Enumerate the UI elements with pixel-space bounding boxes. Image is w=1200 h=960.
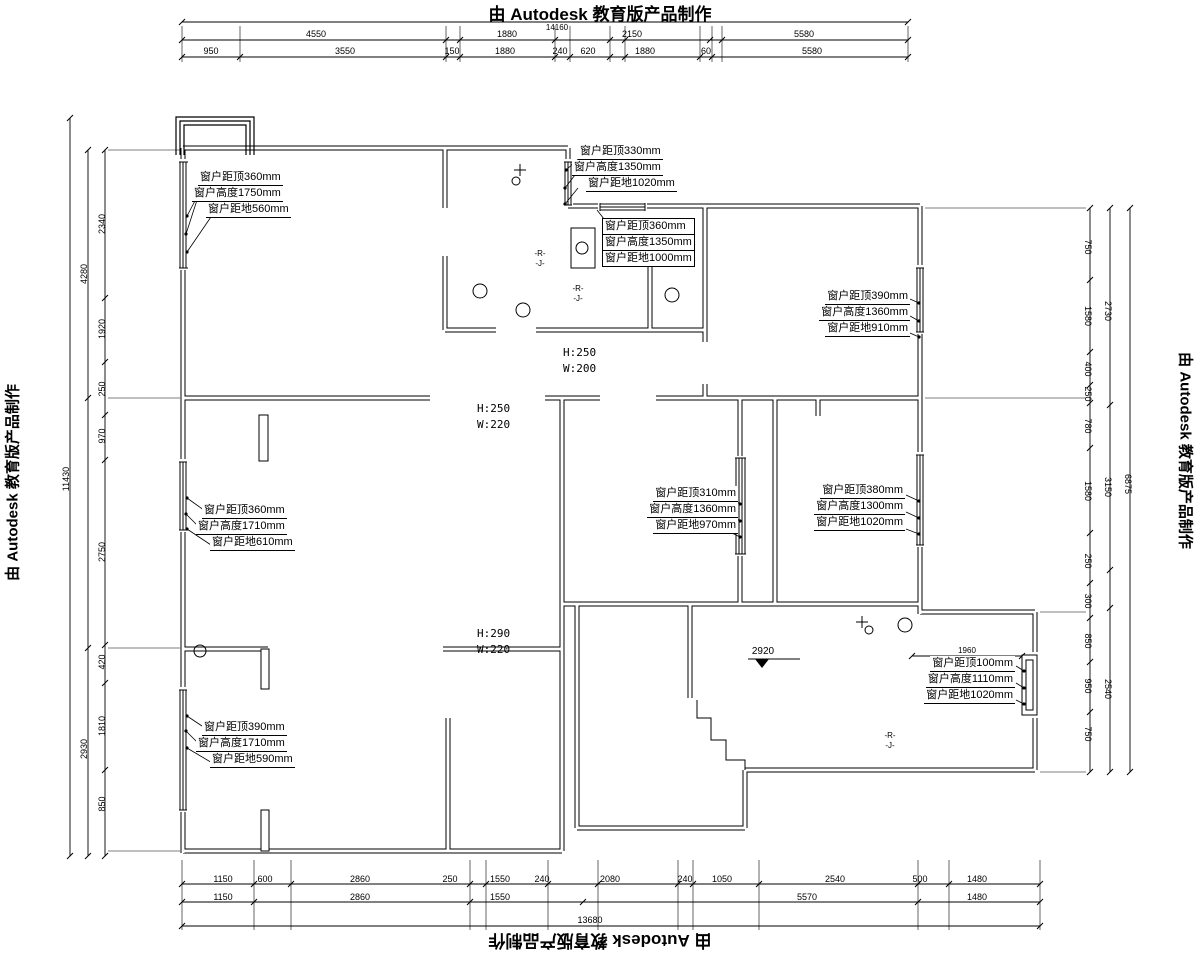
dim-value: 750 [1083,225,1093,269]
beam-width: W:220 [477,643,510,656]
window-top-distance: 窗户距顶360mm [198,170,283,186]
window-label-9: 窗户距顶100mm 窗户高度1110mm 窗户距地1020mm [918,656,1015,704]
bay-window-symbol [1022,655,1037,715]
stair-steps [697,700,745,770]
window-top-distance: 窗户距顶390mm [202,720,287,736]
dim-value: 1580 [1083,294,1093,338]
window-label-5: 窗户距顶360mm 窗户高度1710mm 窗户距地610mm [196,503,295,551]
watermark-left: 由 Autodesk 教育版产品制作 [2,333,23,633]
beam-height: H:250 [563,346,596,359]
drain-code: -J- [535,259,544,268]
drain-code: -R- [572,284,583,293]
dim-value: 300 [1083,579,1093,623]
drain-mark-3: -R--J- [878,731,902,751]
dim-value: 2730 [1103,289,1113,333]
dim-value: 5580 [782,29,826,39]
window-label-8: 窗户距顶390mm 窗户高度1710mm 窗户距地590mm [196,720,295,768]
drain-code: -R- [534,249,545,258]
beam-note-1: H:250W:200 [563,345,596,377]
beam-note-2: H:250W:220 [477,401,510,433]
dim-value: 4280 [79,252,89,296]
dim-value: 1480 [955,874,999,884]
dim-value: 850 [97,782,107,826]
window-top-distance: 窗户距顶360mm [202,503,287,519]
window-sill-height: 窗户距地1020mm [924,688,1015,704]
dim-value: 1580 [1083,469,1093,513]
dim-value: 250 [97,367,107,411]
dim-value: 1550 [478,892,522,902]
window-sill-height: 窗户距地1020mm [814,515,905,531]
dim-value: 750 [1083,712,1093,756]
dim-value: 240 [520,874,564,884]
closet-boxes [259,228,595,851]
dim-value: 4550 [294,29,338,39]
window-label-2: 窗户距顶330mm 窗户高度1350mm 窗户距地1020mm [572,144,677,192]
window-height: 窗户高度1360mm [819,305,910,321]
beam-height: H:250 [477,402,510,415]
beam-width: W:200 [563,362,596,375]
dim-value: 150 [430,46,474,56]
dim-value: 250 [1083,539,1093,583]
dim-value: 950 [189,46,233,56]
dim-left-total: 11430 [61,457,71,501]
dim-value: 1150 [201,874,245,884]
dim-value: 2930 [79,727,89,771]
beam-width: W:220 [477,418,510,431]
window-top-distance: 窗户距顶380mm [820,483,905,499]
dim-value: 970 [97,414,107,458]
dim-value: 250 [428,874,472,884]
window-height: 窗户高度1710mm [196,736,287,752]
window-sill-height: 窗户距地1020mm [586,176,677,192]
dim-value: 1880 [483,46,527,56]
beam-note-3: H:290W:220 [477,626,510,658]
window-top-distance: 窗户距顶360mm [603,219,694,235]
dim-value: 850 [1083,619,1093,663]
window-sill-height: 窗户距地1000mm [603,251,694,266]
dim-value: 1480 [955,892,999,902]
window-sill-height: 窗户距地590mm [210,752,295,768]
dim-value: 2860 [338,874,382,884]
dim-top-total: 14160 [535,23,579,32]
drain-mark-1: -R--J- [528,249,552,269]
window-label-7: 窗户距顶380mm 窗户高度1300mm 窗户距地1020mm [808,483,905,531]
window-height: 窗户高度1710mm [196,519,287,535]
dim-value: 1050 [700,874,744,884]
window-top-distance: 窗户距顶390mm [825,289,910,305]
dim-value: 60 [684,46,728,56]
window-label-6: 窗户距顶310mm 窗户高度1360mm 窗户距地970mm [643,486,738,534]
window-sill-height: 窗户距地970mm [653,518,738,534]
window-sill-height: 窗户距地610mm [210,535,295,551]
dim-value: 1880 [623,46,667,56]
window-label-4: 窗户距顶390mm 窗户高度1360mm 窗户距地910mm [815,289,910,337]
cad-floorplan-canvas: 由 Autodesk 教育版产品制作 由 Autodesk 教育版产品制作 由 … [0,0,1200,960]
window-top-distance: 窗户距顶330mm [578,144,663,160]
drain-code: -R- [884,731,895,740]
dim-right-total: 6875 [1123,462,1133,506]
drain-code: -J- [573,294,582,303]
watermark-right: 由 Autodesk 教育版产品制作 [1176,301,1197,601]
dim-value: 1150 [201,892,245,902]
drain-mark-2: -R--J- [566,284,590,304]
dim-value: 2080 [588,874,632,884]
watermark-top: 由 Autodesk 教育版产品制作 [0,0,1200,25]
window-top-distance: 窗户距顶310mm [653,486,738,502]
dim-value: 1920 [97,307,107,351]
dim-value: 2750 [97,530,107,574]
window-label-1: 窗户距顶360mm 窗户高度1750mm 窗户距地560mm [192,170,291,218]
dim-value: 2540 [813,874,857,884]
dim-value: 2860 [338,892,382,902]
beam-height: H:290 [477,627,510,640]
dim-value: 600 [243,874,287,884]
dim-value: 3150 [1103,465,1113,509]
dim-value: 1810 [97,704,107,748]
window-height: 窗户高度1750mm [192,186,283,202]
dim-value: 620 [566,46,610,56]
dim-value: 1880 [485,29,529,39]
dim-value: 500 [898,874,942,884]
window-top-distance: 窗户距顶100mm [930,656,1015,672]
window-sill-height: 窗户距地910mm [825,321,910,337]
window-height: 窗户高度1350mm [603,235,694,251]
dim-value: 2340 [97,202,107,246]
window-height: 窗户高度1360mm [647,502,738,518]
window-sill-height: 窗户距地560mm [206,202,291,218]
dim-bottom-total: 13680 [568,915,612,925]
dim-value: 5580 [790,46,834,56]
elevation-value: 2920 [741,646,785,657]
dim-value: 2150 [610,29,654,39]
window-label-3: 窗户距顶360mm 窗户高度1350mm 窗户距地1000mm [602,218,695,267]
dim-value: 3550 [323,46,367,56]
elevation-marker [748,659,800,668]
dim-value: 5570 [785,892,829,902]
window-height: 窗户高度1110mm [926,672,1015,688]
window-height: 窗户高度1300mm [814,499,905,515]
watermark-bottom: 由 Autodesk 教育版产品制作 [0,930,1200,955]
dim-value: 950 [1083,664,1093,708]
plumbing-fixtures [194,242,912,657]
dim-value: 780 [1083,404,1093,448]
window-height: 窗户高度1350mm [572,160,663,176]
dim-value: 420 [97,640,107,684]
dim-value: 1550 [478,874,522,884]
dim-value: 2540 [1103,667,1113,711]
dim-window-width: 1960 [945,646,989,655]
drain-code: -J- [885,741,894,750]
